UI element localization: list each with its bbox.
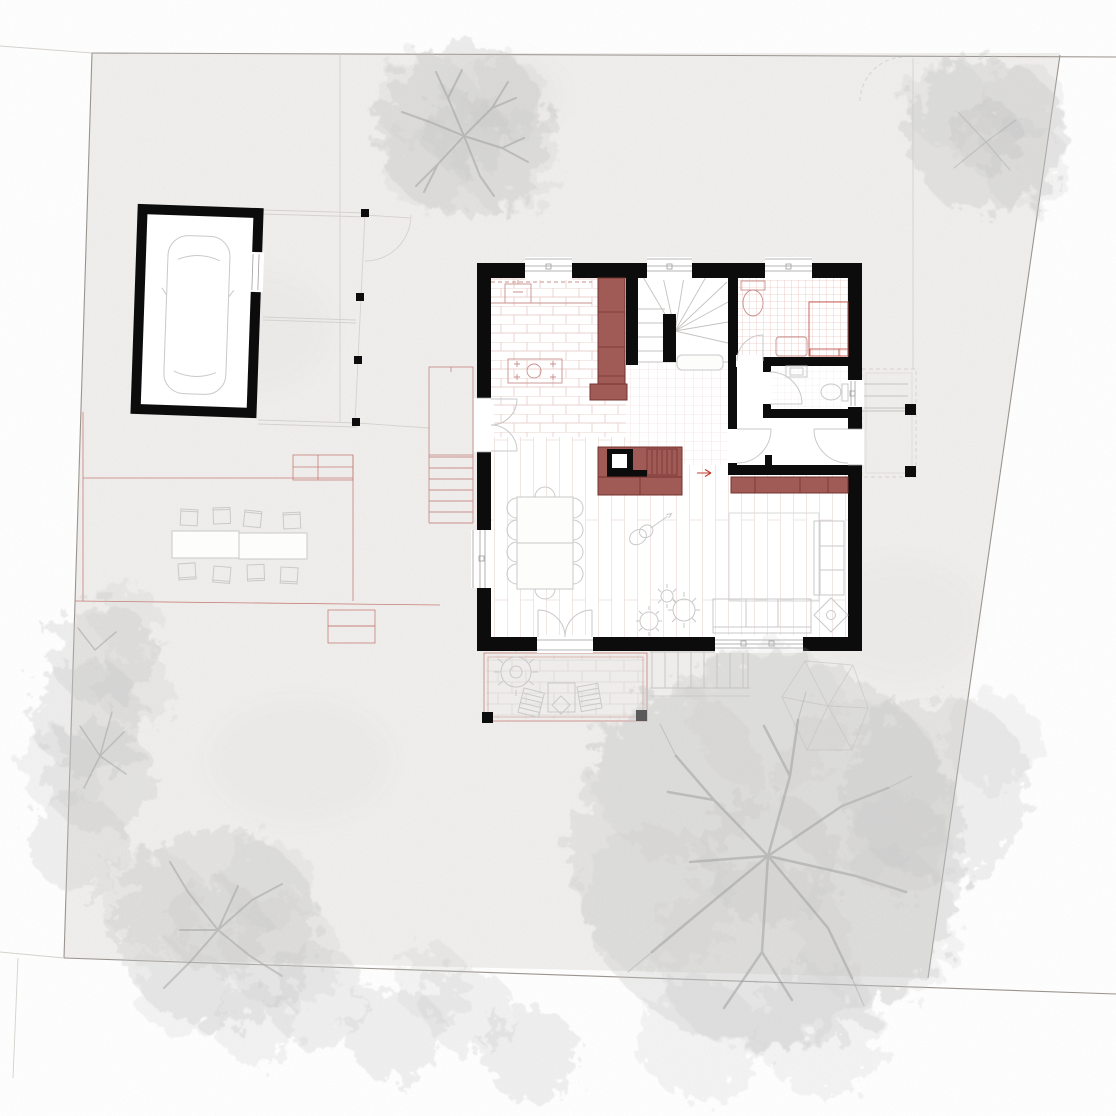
garage-side-door-gap	[249, 252, 264, 292]
tree-top-right	[906, 58, 1070, 214]
garage	[133, 206, 266, 416]
porch-post-1	[905, 404, 916, 415]
north-window-3	[765, 257, 812, 280]
sideboard	[731, 477, 848, 493]
stair-newel-wall	[663, 314, 676, 362]
wall-stub	[765, 455, 772, 465]
north-window-2	[647, 257, 692, 280]
living-north-wall	[728, 465, 848, 475]
outdoor-table-1	[172, 531, 239, 558]
stair-bath-wall	[728, 263, 738, 362]
hearth-bench	[598, 477, 682, 495]
bathroom-floor	[737, 277, 848, 357]
site-plan-drawing	[0, 0, 1116, 1116]
garage-interior	[133, 206, 262, 416]
south-terrace	[482, 648, 647, 723]
stair-bottom-step	[677, 355, 723, 370]
wc-floor	[771, 366, 848, 409]
wc-south-wall	[763, 409, 848, 418]
outdoor-table-2	[239, 533, 307, 559]
flue	[612, 454, 627, 468]
dining-set	[507, 487, 583, 599]
north-window-1	[525, 257, 572, 280]
site-plan-canvas	[0, 0, 1116, 1116]
terrace-post-left	[482, 712, 493, 723]
porch-post-2	[905, 466, 916, 477]
house	[471, 257, 864, 653]
tree-top-center	[376, 44, 558, 216]
kitchen-stair-wall	[626, 277, 638, 365]
west-window	[471, 530, 494, 588]
